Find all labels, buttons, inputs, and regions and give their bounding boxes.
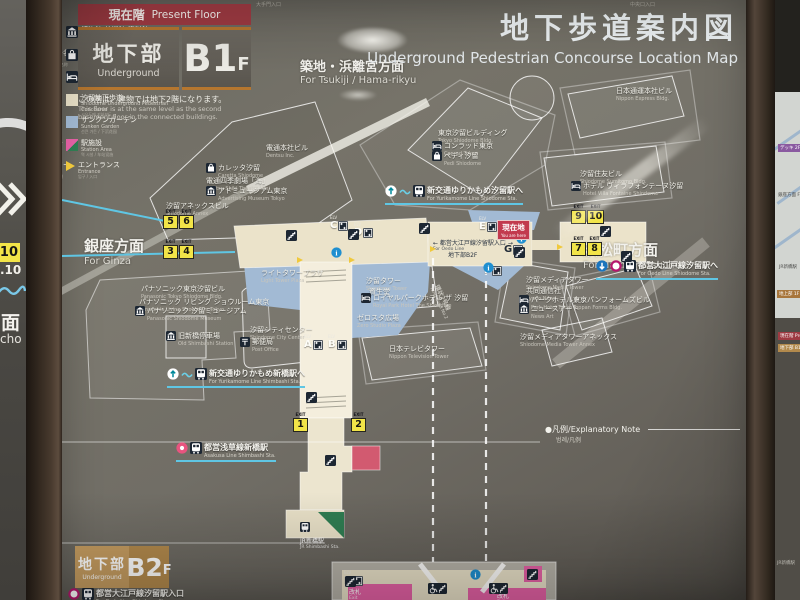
right-sign-ginza: 銀座方面 For Ginza <box>778 192 800 198</box>
floor-level-suffix: F <box>237 54 249 75</box>
left-sign-roman: cho <box>0 332 22 346</box>
floor-note: この階は、建物では地下2階になります。 This floor is at the… <box>78 94 226 121</box>
sign-title: 地下歩道案内図 Underground Pedestrian Concourse… <box>367 5 738 67</box>
present-floor-jp: 現在階 <box>109 6 145 23</box>
b2-level-cell: B2 F <box>129 546 169 588</box>
b2f-map <box>332 562 556 600</box>
you-are-here-jp: 現在地 <box>501 222 526 233</box>
left-sign-exit-sub: .10 <box>0 263 21 277</box>
legend: ●凡例/Explanatory Note 범례/凡例 <box>545 424 743 600</box>
present-floor-en: Present Floor <box>152 9 221 21</box>
b2-name-en: Underground <box>82 574 121 581</box>
road-streak <box>776 162 800 205</box>
legend-bullet: ● <box>545 425 552 434</box>
floor-level-cell: B1 F <box>182 27 251 90</box>
you-are-here-marker: 現在地 You are here <box>497 220 530 240</box>
floor-note-jp: この階は、建物では地下2階になります。 <box>78 94 226 105</box>
b2-name-jp: 地下部 <box>78 554 126 574</box>
legend-header-jp: 凡例 <box>552 425 568 434</box>
floor-badge-b2f: 地下部 Underground B2 F <box>75 546 169 588</box>
right-sign-jr: JR新橋駅 <box>779 264 797 270</box>
floor-name-jp: 地下部 <box>93 38 165 68</box>
right-sign-map-1f: デッキ 2F 銀座方面 For Ginza JR新橋駅 地上部 1F <box>775 92 800 318</box>
right-sign-present: 現在階 Present Floor <box>778 332 800 340</box>
you-are-here-en: You are here <box>501 233 526 238</box>
arc-graphic <box>0 103 26 241</box>
b2-level-suffix: F <box>163 563 172 578</box>
legend-header-line <box>648 429 740 430</box>
present-floor-banner: 現在階 Present Floor <box>78 4 251 25</box>
legend-header-sub: 범례/凡例 <box>556 435 743 444</box>
yurikamome-wave-icon <box>0 282 26 298</box>
legend-header-en: Explanatory Note <box>571 425 641 434</box>
floor-badge-b1f: 地下部 Underground B1 F <box>78 27 251 90</box>
adjacent-sign-left: 10 .10 面 cho <box>0 0 26 600</box>
floor-level: B1 <box>183 40 237 77</box>
dashed-roads <box>433 258 486 600</box>
deck-2f-chip: デッキ 2F <box>778 144 800 152</box>
left-sign-exit-number: 10 <box>0 243 20 262</box>
right-sign-top <box>775 0 800 92</box>
sign-title-en: Underground Pedestrian Concourse Locatio… <box>367 49 738 67</box>
b2-name-cell: 地下部 Underground <box>75 546 129 588</box>
floor-name-cell: 地下部 Underground <box>78 27 179 90</box>
left-sign-kanji: 面 <box>1 308 20 335</box>
sign-frame-left <box>26 0 62 600</box>
road-streak <box>775 215 800 252</box>
b2-level: B2 <box>126 553 162 582</box>
right-sign-b1f: 地下部 B1F <box>778 344 800 352</box>
floor-note-en1: This floor is at the same level as the s… <box>78 105 226 113</box>
adjacent-sign-right: デッキ 2F 銀座方面 For Ginza JR新橋駅 地上部 1F 現在階 P… <box>775 0 800 600</box>
sign-frame-right <box>746 0 775 600</box>
chevron-right-icon <box>0 182 26 216</box>
sign-title-jp: 地下歩道案内図 <box>367 5 738 47</box>
ground-1f-chip: 地上部 1F <box>777 290 800 298</box>
photo-of-station-map-sign: 現在階 Present Floor 地下部 Underground B1 F こ… <box>0 0 800 600</box>
floor-note-en2: basement floor in the connected building… <box>78 113 226 121</box>
floor-name-en: Underground <box>97 68 159 79</box>
right-sign-bottom-label: JR新橋駅 <box>777 560 795 566</box>
